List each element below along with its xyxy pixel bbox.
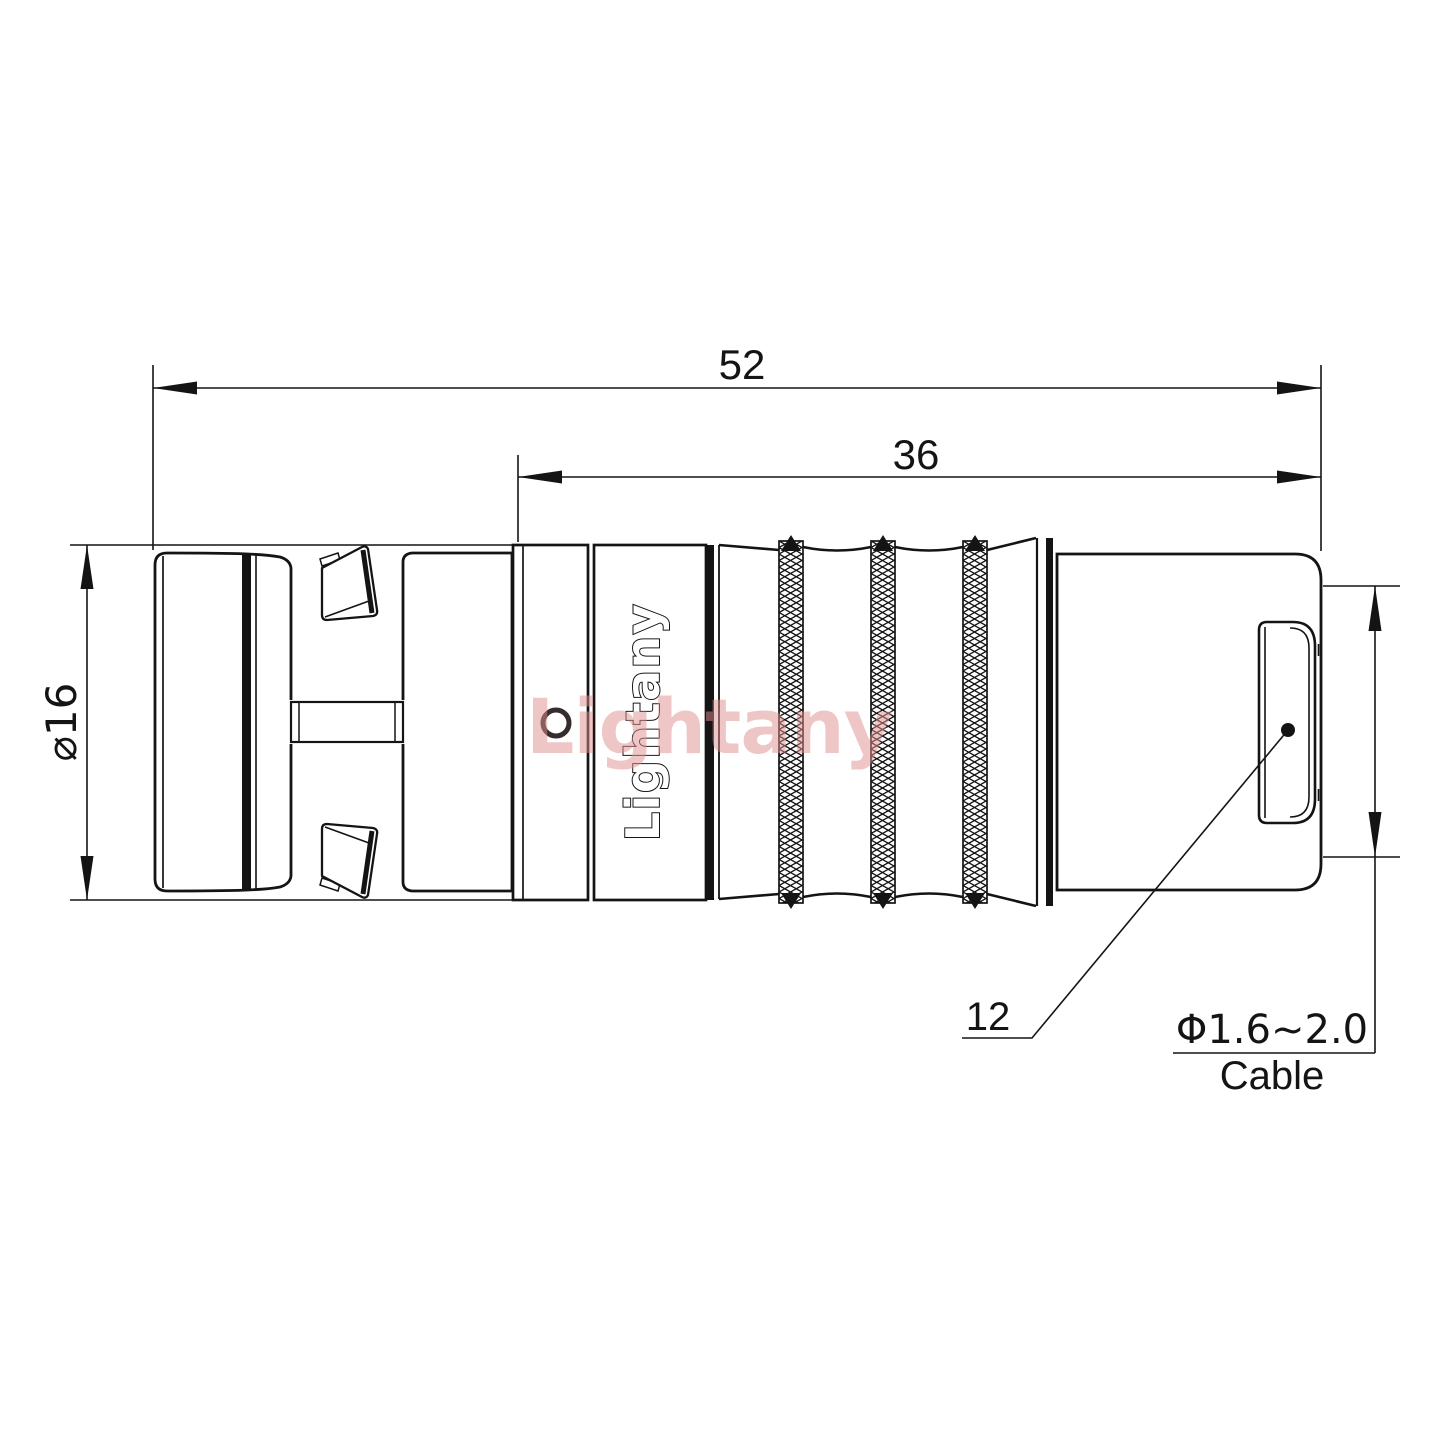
dim-label-36: 36 bbox=[893, 431, 940, 478]
front-shell bbox=[155, 546, 512, 897]
rear-sleeve bbox=[1057, 554, 1321, 890]
arrowhead-down bbox=[1369, 812, 1382, 857]
dim-label-52: 52 bbox=[719, 341, 766, 388]
front-groove-band bbox=[242, 554, 251, 890]
latch-slot bbox=[291, 702, 403, 742]
dim-overall-52: 52 bbox=[153, 341, 1321, 551]
drawing-canvas: Lightany bbox=[0, 0, 1440, 1440]
arrowhead-left bbox=[518, 471, 562, 484]
grip-end-band bbox=[1046, 538, 1053, 906]
knurl-band-3 bbox=[963, 535, 987, 909]
arrowhead-up bbox=[1369, 586, 1382, 631]
part-label-12: 12 bbox=[966, 995, 1011, 1039]
latch-bottom bbox=[320, 824, 377, 898]
cable-word-label: Cable bbox=[1220, 1054, 1325, 1098]
arrowhead-right bbox=[1277, 382, 1321, 395]
watermark-text: Lightany bbox=[526, 682, 893, 771]
dim-body-36: 36 bbox=[518, 431, 1321, 542]
arrowhead-down bbox=[81, 856, 94, 900]
cable-annotation: Φ1.6~2.0 Cable bbox=[1173, 1007, 1375, 1098]
arrowhead-right bbox=[1277, 471, 1321, 484]
arrowhead-left bbox=[153, 382, 197, 395]
cable-bushing bbox=[1259, 622, 1319, 823]
arrowhead-up bbox=[81, 545, 94, 589]
dim-rear-12 bbox=[1323, 586, 1400, 1053]
connector-drawing: Lightany bbox=[0, 0, 1440, 1440]
latch-top bbox=[320, 546, 377, 620]
dim-label-diameter-16: ⌀16 bbox=[37, 683, 86, 762]
cable-spec-label: Φ1.6~2.0 bbox=[1176, 1007, 1368, 1053]
